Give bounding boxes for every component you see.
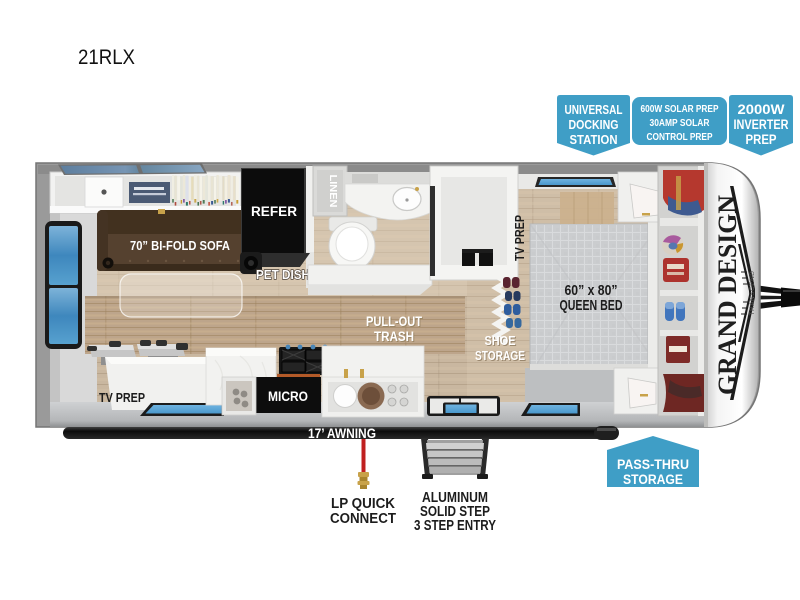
svg-text:REFER: REFER xyxy=(251,204,297,219)
svg-text:70” BI-FOLD SOFA: 70” BI-FOLD SOFA xyxy=(130,238,231,253)
svg-text:LINEN: LINEN xyxy=(327,175,338,208)
svg-text:PASS-THRU: PASS-THRU xyxy=(617,457,689,472)
svg-text:3 STEP ENTRY: 3 STEP ENTRY xyxy=(414,518,496,534)
svg-text:STORAGE: STORAGE xyxy=(623,472,683,487)
svg-text:LP QUICK: LP QUICK xyxy=(331,496,395,512)
svg-text:TV PREP: TV PREP xyxy=(513,215,527,261)
svg-text:MICRO: MICRO xyxy=(268,389,308,404)
svg-text:SHOE: SHOE xyxy=(485,333,516,348)
svg-text:21RLX: 21RLX xyxy=(78,46,135,69)
svg-text:TV PREP: TV PREP xyxy=(99,390,145,405)
svg-text:17’ AWNING: 17’ AWNING xyxy=(308,426,376,441)
svg-text:30AMP SOLAR: 30AMP SOLAR xyxy=(650,117,710,129)
svg-text:CONTROL PREP: CONTROL PREP xyxy=(647,131,713,143)
svg-text:CONNECT: CONNECT xyxy=(330,511,396,527)
svg-text:PULL-OUT: PULL-OUT xyxy=(366,313,422,329)
svg-text:PREP: PREP xyxy=(746,132,777,147)
svg-text:PET DISH: PET DISH xyxy=(256,267,310,282)
svg-text:QUEEN BED: QUEEN BED xyxy=(560,297,623,314)
svg-text:STORAGE: STORAGE xyxy=(475,348,525,363)
svg-text:TRASH: TRASH xyxy=(374,328,414,344)
svg-text:2000W: 2000W xyxy=(738,102,785,117)
svg-text:INVERTER: INVERTER xyxy=(734,117,789,132)
svg-text:STATION: STATION xyxy=(570,132,618,147)
svg-text:DOCKING: DOCKING xyxy=(569,117,619,132)
svg-text:600W SOLAR PREP: 600W SOLAR PREP xyxy=(641,103,719,115)
svg-text:TRANSCEND: TRANSCEND xyxy=(749,271,756,316)
svg-text:UNIVERSAL: UNIVERSAL xyxy=(565,102,623,117)
